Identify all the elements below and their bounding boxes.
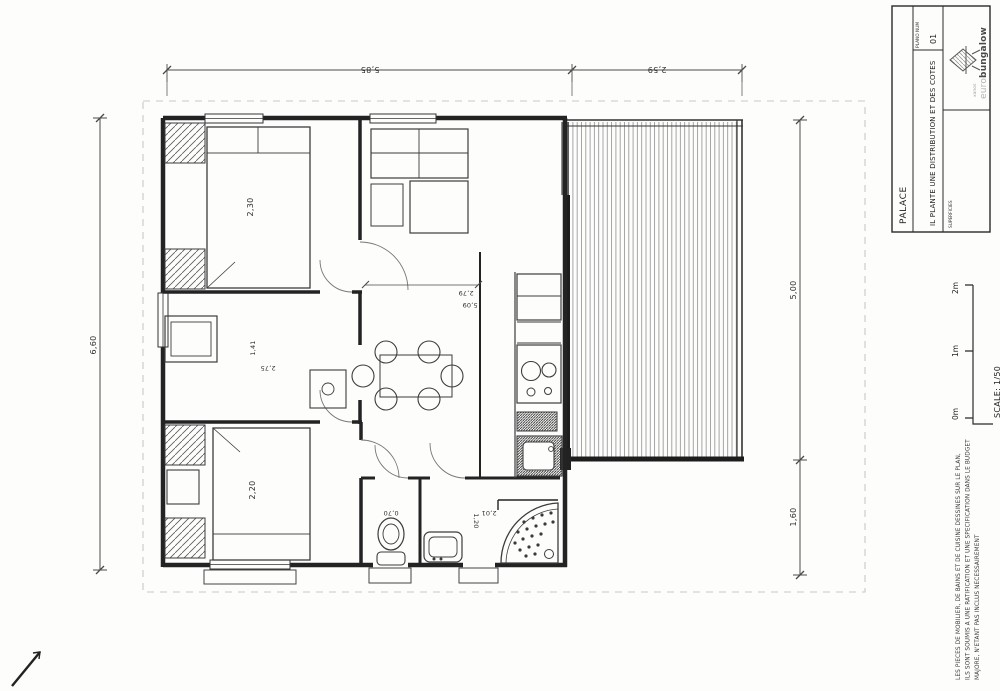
wardrobe-corner — [165, 518, 205, 558]
nightstand — [167, 470, 199, 504]
scanned-floor-plan-sheet: 5,85 2,59 6,60 5,00 1,60 2,30 1,41 2,75 … — [0, 0, 1000, 691]
double-bed — [207, 127, 310, 288]
dim-bedroom3: 2,20 — [248, 480, 257, 499]
drawing-title: IL PLANTE UNE DISTRIBUTION ET DES COTES — [929, 60, 937, 226]
scale-tick-1m: 1m — [951, 345, 960, 357]
side-table — [371, 184, 403, 226]
porch-deck — [560, 120, 744, 470]
logo-tagline: xanos — [973, 83, 978, 97]
disclaimer-note: LES PIECES DE MOBILIER, DE BAINS ET DE C… — [956, 439, 981, 680]
wardrobe — [165, 316, 217, 362]
project-name: PALACE — [899, 186, 909, 224]
dim-top-1: 5,85 — [360, 65, 379, 74]
shower-drain — [545, 550, 554, 559]
dim-top-2: 2,59 — [647, 65, 666, 74]
title-block: PALACE PLANO NUM 01 IL PLANTE UNE DISTRI… — [892, 6, 990, 232]
bedroom1-furniture — [165, 123, 310, 289]
dim-hall-a: 2,79 — [458, 289, 473, 297]
shower-tray-dots — [513, 511, 554, 557]
dim-wc: 0,70 — [383, 509, 398, 517]
plan-num: 01 — [929, 34, 938, 44]
wardrobe-corner — [165, 425, 205, 465]
desk — [310, 370, 346, 408]
dim-bath-a: 1,20 — [472, 513, 480, 528]
north-arrow-icon — [12, 652, 40, 686]
dim-right-1: 5,00 — [789, 280, 798, 299]
dim-right-2: 1,60 — [789, 507, 798, 526]
chair — [352, 365, 374, 387]
kitchen-sink — [523, 442, 554, 470]
dim-bath-b: 2,01 — [481, 509, 496, 517]
disclaimer-line-2: ILS SONT SOUMIS A UNE RATIFICATION ET UN… — [966, 439, 972, 680]
scale-bar: 0m 1m 2m SCALE: 1/50 — [951, 282, 1000, 424]
scale-tick-2m: 2m — [951, 282, 960, 294]
door-swings — [320, 242, 465, 478]
plan-num-label: PLANO NUM — [915, 22, 921, 48]
windows — [158, 114, 436, 569]
logo-brand-light: euro — [979, 78, 989, 99]
dining-set — [352, 341, 463, 410]
disclaimer-line-1: LES PIECES DE MOBILIER, DE BAINS ET DE C… — [956, 453, 962, 680]
single-bed — [213, 428, 310, 560]
shower-tray — [501, 503, 558, 563]
sofa — [371, 129, 468, 178]
toilet — [378, 518, 404, 550]
fridge — [517, 412, 557, 431]
chair — [418, 388, 440, 410]
washbasin — [424, 532, 462, 562]
chair — [418, 341, 440, 363]
superficies-label: SUPERFICIES — [948, 200, 954, 228]
bedroom3-furniture — [165, 425, 310, 560]
bathroom — [377, 503, 558, 565]
chair — [375, 341, 397, 363]
kitchen-cabinet — [517, 274, 561, 320]
scale-label: SCALE: 1/50 — [993, 366, 1000, 418]
dim-bedroom2-b: 2,75 — [260, 364, 275, 372]
logo-brand: eurobungalow — [979, 27, 989, 99]
wardrobe-corner — [165, 123, 205, 163]
dim-left: 6,60 — [89, 335, 98, 354]
bedroom2-furniture — [165, 316, 346, 408]
dim-bedroom1: 2,30 — [246, 197, 255, 216]
dim-bedroom2-a: 1,41 — [249, 340, 257, 355]
chair — [375, 388, 397, 410]
logo-brand-bold: bungalow — [979, 27, 989, 78]
armchair — [410, 181, 468, 233]
wardrobe-corner — [165, 249, 205, 289]
interior-walls — [163, 118, 568, 565]
living-room-furniture — [371, 129, 468, 233]
disclaimer-line-3: MAJORE, N'ETANT PAS INCLUS NECESSAIREMEN… — [975, 534, 981, 680]
scale-tick-0m: 0m — [951, 408, 960, 420]
kitchen — [515, 272, 562, 478]
entrance-steps — [204, 568, 498, 584]
floor-plan-drawing: 5,85 2,59 6,60 5,00 1,60 2,30 1,41 2,75 … — [0, 0, 1000, 691]
dim-hall-b: 5,09 — [462, 301, 477, 309]
